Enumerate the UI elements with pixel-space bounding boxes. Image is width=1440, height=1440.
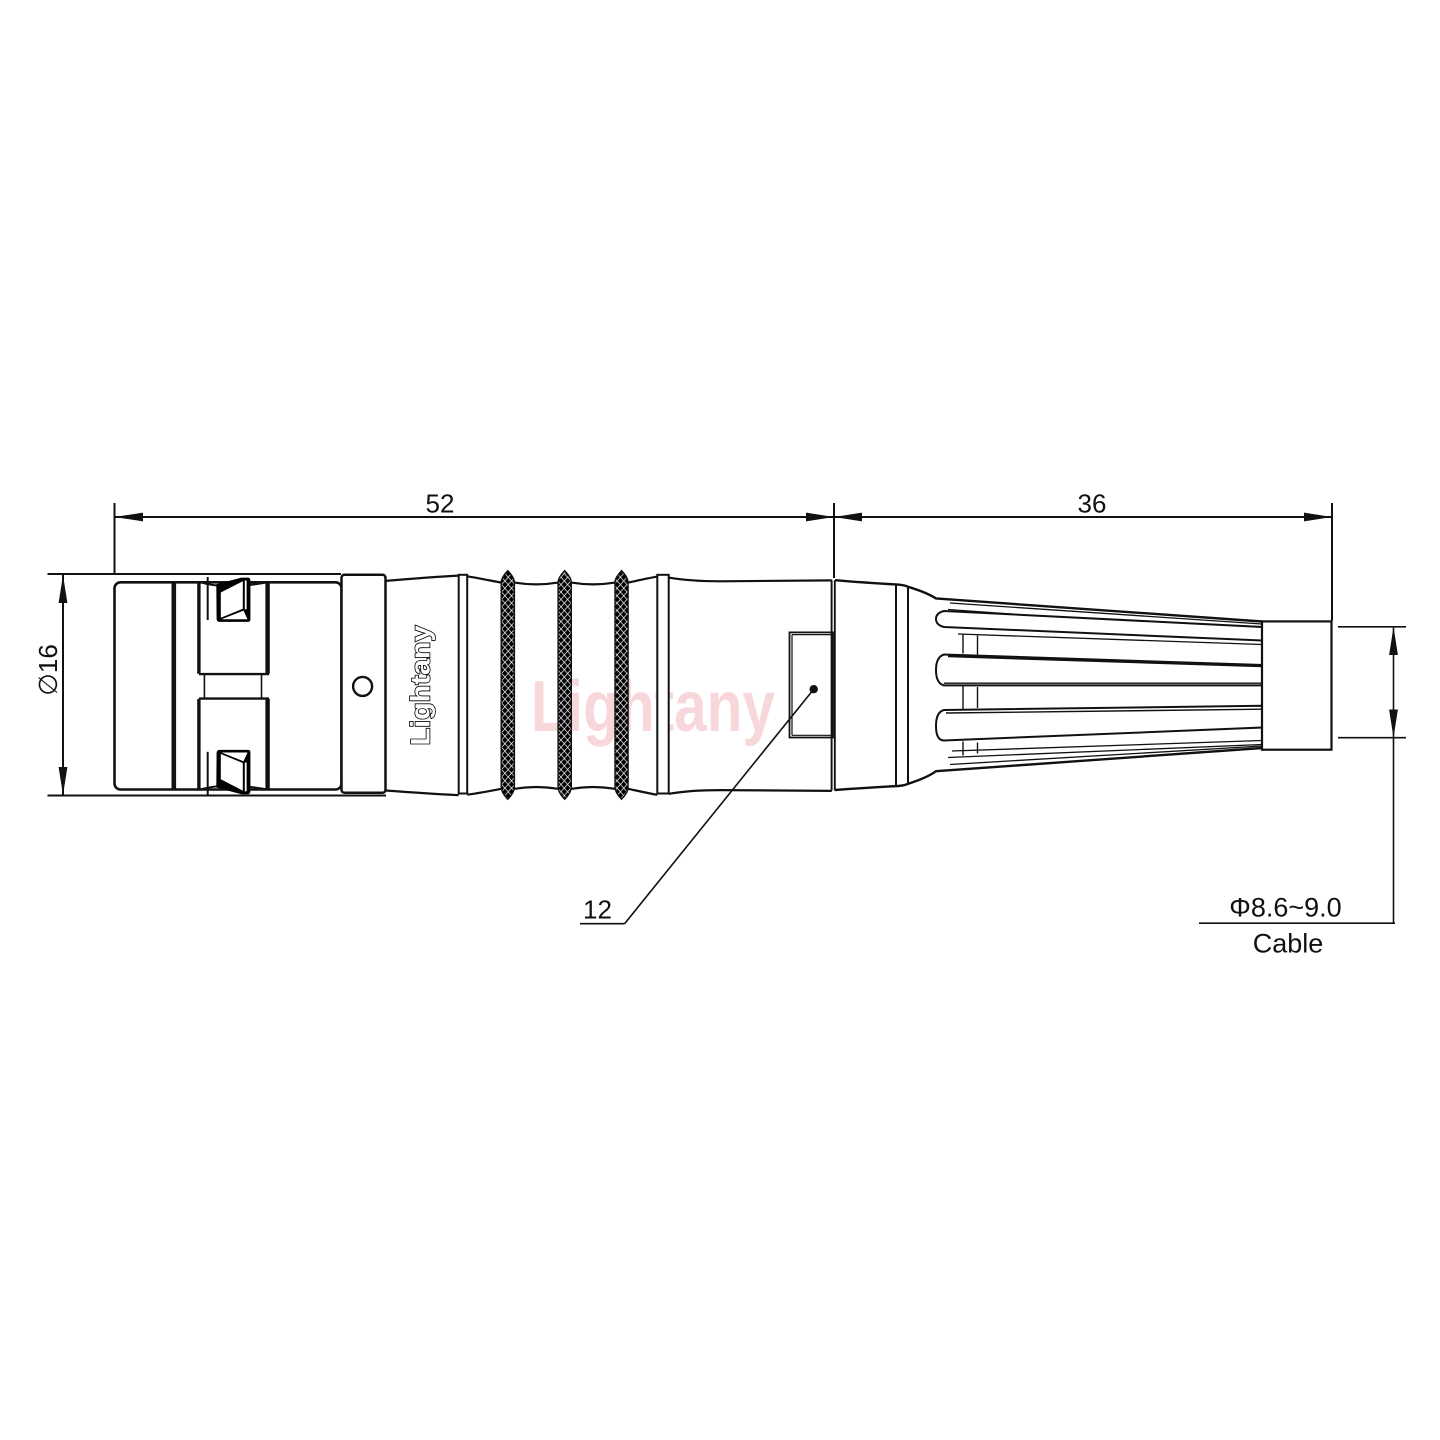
svg-text:Φ8.6~9.0: Φ8.6~9.0: [1229, 893, 1341, 923]
svg-text:Cable: Cable: [1253, 929, 1324, 959]
svg-text:∅16: ∅16: [33, 644, 63, 696]
svg-text:12: 12: [583, 895, 612, 925]
svg-text:52: 52: [426, 489, 455, 519]
svg-text:Lightany: Lightany: [406, 626, 436, 746]
svg-text:36: 36: [1078, 489, 1107, 519]
